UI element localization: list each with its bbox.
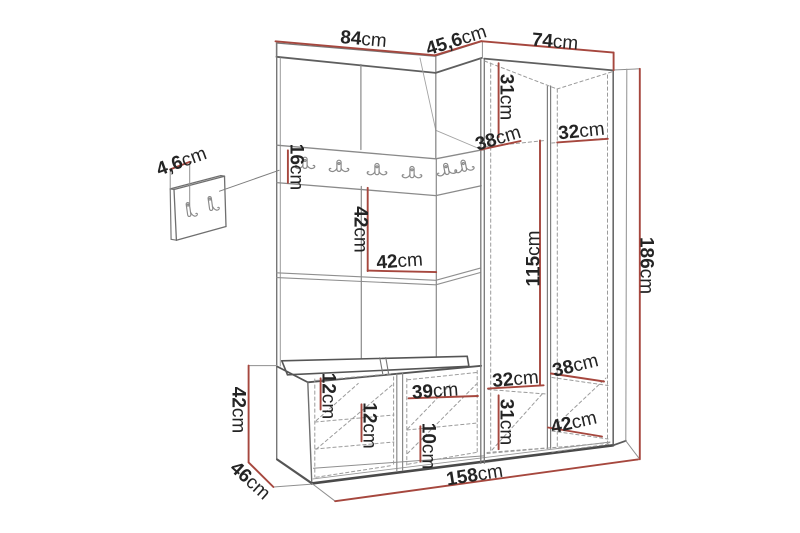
- svg-text:115cm: 115cm: [524, 231, 545, 287]
- svg-text:74cm: 74cm: [531, 30, 579, 55]
- svg-text:186cm: 186cm: [636, 237, 657, 294]
- svg-text:10cm: 10cm: [418, 423, 439, 469]
- svg-text:12cm: 12cm: [318, 373, 339, 419]
- svg-text:31cm: 31cm: [496, 74, 517, 120]
- svg-text:39cm: 39cm: [411, 379, 459, 403]
- svg-text:31cm: 31cm: [496, 399, 517, 445]
- svg-text:84cm: 84cm: [339, 27, 387, 52]
- svg-text:42cm: 42cm: [376, 249, 424, 273]
- svg-text:16cm: 16cm: [286, 144, 307, 190]
- svg-text:12cm: 12cm: [359, 402, 380, 448]
- svg-text:42cm: 42cm: [228, 387, 249, 433]
- svg-text:42cm: 42cm: [350, 206, 371, 252]
- svg-text:32cm: 32cm: [491, 367, 539, 392]
